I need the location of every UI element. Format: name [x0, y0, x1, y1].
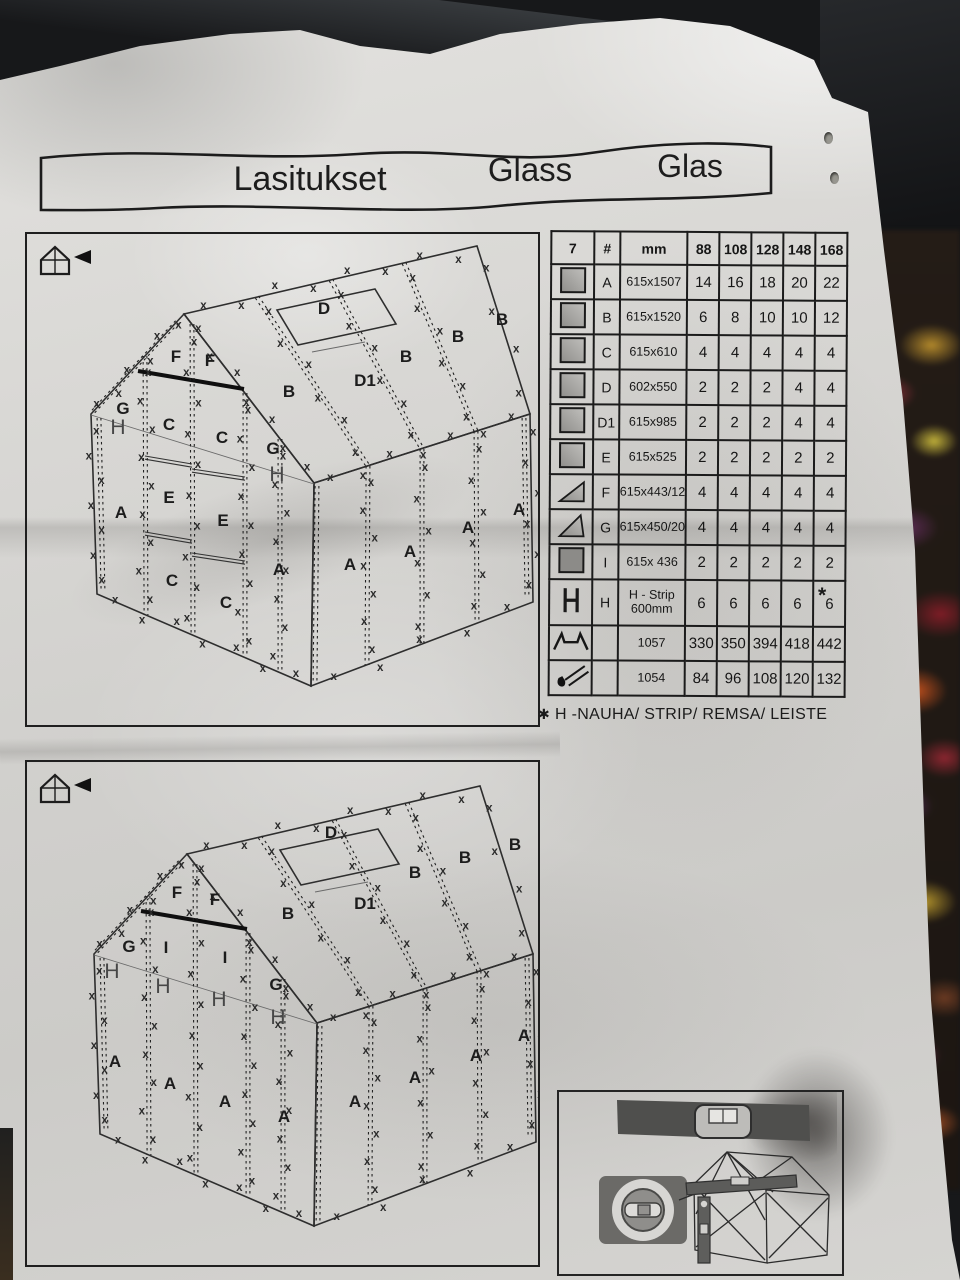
x-mark: x	[516, 883, 523, 895]
table-row: F615x443/1244444	[550, 474, 847, 511]
part-size: 615x1507	[620, 265, 688, 300]
x-mark: x	[529, 1120, 536, 1132]
x-mark: x	[247, 578, 254, 590]
x-mark: x	[341, 414, 348, 426]
x-mark: x	[196, 1122, 203, 1134]
part-quantity: 2	[686, 440, 718, 475]
x-mark: x	[442, 897, 449, 909]
part-quantity: 4	[814, 406, 846, 441]
arrow-left-icon	[74, 778, 91, 792]
x-mark: x	[187, 1153, 194, 1165]
banner-title-german: Glas	[657, 148, 723, 184]
x-mark: x	[526, 580, 533, 592]
x-mark: x	[360, 505, 367, 517]
x-mark: x	[401, 398, 408, 410]
banner-title-english: Glass	[488, 151, 572, 188]
greenhouse-glazing-diagram-plain-side: xxxxxxxxxxxxxxxxxxxxxxxxxxxxxxxxxxxxxxxx…	[27, 762, 538, 1265]
part-quantity: 6	[685, 580, 717, 626]
part-quantity: 96	[717, 661, 749, 696]
table-row: A615x15071416182022	[551, 264, 848, 301]
spirit-level-icon	[617, 1100, 810, 1141]
x-mark: x	[238, 491, 245, 503]
x-mark: x	[417, 843, 424, 855]
x-mark: x	[527, 1058, 534, 1070]
panel-label-A: A	[115, 503, 127, 522]
x-mark: x	[138, 452, 145, 464]
x-mark: x	[198, 999, 205, 1011]
column-header-size: 148	[784, 233, 816, 266]
x-mark: x	[310, 283, 317, 295]
part-quantity: 2	[718, 440, 750, 475]
x-mark: x	[380, 1202, 387, 1214]
panel-label-A: A	[470, 1046, 482, 1065]
part-quantity: 2	[750, 440, 782, 475]
x-mark: x	[409, 272, 416, 284]
view-direction-icon	[35, 770, 97, 808]
part-quantity: 84	[685, 661, 717, 696]
x-mark: x	[377, 375, 384, 387]
x-mark: x	[372, 1184, 379, 1196]
part-letter: H	[592, 579, 618, 625]
x-mark: x	[468, 475, 475, 487]
x-mark: x	[195, 323, 202, 335]
photo-of-instruction-sheet: { "title_banner": { "fi": "Lasitukset", …	[0, 0, 960, 1280]
x-mark: x	[522, 457, 529, 469]
x-mark: x	[101, 1015, 108, 1027]
x-mark: x	[483, 263, 490, 275]
gable-triangle-f-icon	[550, 474, 593, 509]
x-mark: x	[471, 1015, 478, 1027]
x-mark: x	[414, 494, 421, 506]
panel-label-F: F	[171, 347, 181, 366]
footnote: ✱H -NAUHA/ STRIP/ REMSA/ LEISTE	[538, 706, 858, 724]
part-quantity: 4	[718, 510, 750, 545]
x-mark: x	[102, 1114, 109, 1126]
part-quantity: 2	[750, 405, 782, 440]
bubble-level-icon	[599, 1176, 687, 1244]
x-mark: x	[139, 509, 146, 521]
x-mark: x	[422, 462, 429, 474]
x-mark: x	[467, 1168, 474, 1180]
part-quantity: 120	[781, 662, 813, 697]
x-mark: x	[154, 331, 161, 343]
x-mark: x	[198, 938, 205, 950]
x-mark: x	[148, 480, 155, 492]
x-mark: x	[246, 937, 253, 949]
part-quantity: 4	[750, 510, 782, 545]
x-mark: x	[418, 1161, 425, 1173]
x-mark: x	[492, 846, 499, 858]
x-mark: x	[515, 388, 522, 400]
x-mark: x	[175, 319, 182, 331]
x-mark: x	[368, 477, 375, 489]
x-mark: x	[202, 1179, 209, 1191]
part-quantity: 132	[813, 662, 845, 697]
paper-hole	[824, 132, 833, 144]
x-mark: x	[112, 595, 119, 607]
part-quantity: 4	[783, 371, 815, 406]
x-mark: x	[140, 936, 147, 948]
x-mark: x	[263, 1203, 270, 1215]
x-mark: x	[184, 613, 191, 625]
table-row: B615x152068101012	[551, 299, 848, 336]
panel-label-F: F	[205, 351, 215, 370]
x-mark: x	[483, 1046, 490, 1058]
part-letter: D1	[593, 404, 619, 439]
x-mark: x	[346, 321, 353, 333]
x-mark: x	[349, 861, 356, 873]
x-mark: x	[327, 472, 334, 484]
x-mark: x	[363, 1100, 370, 1112]
x-mark: x	[386, 449, 393, 461]
part-quantity: 8	[719, 300, 751, 335]
x-mark: x	[239, 549, 246, 561]
x-mark: x	[428, 1066, 435, 1078]
x-mark: x	[338, 289, 345, 301]
part-quantity: 4	[719, 335, 751, 370]
part-quantity: 2	[719, 370, 751, 405]
paper-sheet: Lasitukset Glass Glas xxxxxxxxxxxxxxxxxx…	[0, 0, 960, 1280]
x-mark: x	[530, 426, 537, 438]
x-mark: x	[99, 574, 106, 586]
part-quantity: 22	[815, 266, 847, 301]
x-mark: x	[151, 1077, 158, 1089]
part-quantity: 2	[686, 405, 718, 440]
x-mark: x	[277, 338, 284, 350]
x-mark: x	[241, 840, 248, 852]
x-mark: x	[98, 525, 105, 537]
panel-label-H: H	[155, 975, 170, 998]
x-mark: x	[537, 1089, 538, 1101]
x-mark: x	[178, 859, 185, 871]
part-letter: G	[593, 509, 619, 544]
panel-label-B: B	[459, 848, 471, 867]
x-mark: x	[424, 589, 431, 601]
part-size: 615x525	[619, 440, 687, 475]
greenhouse-glazing-diagram-door-side: xxxxxxxxxxxxxxxxxxxxxxxxxxxxxxxxxxxxxxxx…	[27, 234, 538, 725]
x-mark: x	[480, 506, 487, 518]
x-mark: x	[287, 1048, 294, 1060]
glass-panel-icon	[550, 439, 593, 474]
table-row: E615x52522222	[550, 439, 847, 476]
x-mark: x	[389, 989, 396, 1001]
x-mark: x	[149, 424, 156, 436]
view-direction-icon	[35, 242, 97, 280]
panel-label-A: A	[349, 1092, 361, 1111]
panel-label-A: A	[409, 1068, 421, 1087]
x-mark: x	[334, 1211, 341, 1223]
x-mark: x	[361, 616, 368, 628]
x-mark: x	[341, 829, 348, 841]
x-mark: x	[373, 1128, 380, 1140]
part-letter: A	[594, 264, 620, 299]
part-quantity: 4	[814, 511, 846, 546]
x-mark: x	[417, 1034, 424, 1046]
x-mark: x	[534, 549, 538, 561]
panel-label-H: H	[269, 463, 284, 486]
panel-label-B: B	[409, 863, 421, 882]
x-mark: x	[307, 1001, 314, 1013]
dark-panel-icon	[549, 544, 592, 579]
x-mark: x	[293, 668, 300, 680]
panel-label-B: B	[496, 310, 508, 329]
x-mark: x	[93, 399, 100, 411]
x-mark: x	[330, 1012, 337, 1024]
x-mark: x	[460, 381, 467, 393]
x-mark: x	[507, 1142, 514, 1154]
panel-label-A: A	[164, 1074, 176, 1093]
panel-label-B: B	[400, 347, 412, 366]
x-mark: x	[508, 411, 515, 423]
x-mark: x	[236, 1182, 243, 1194]
glass-panel-icon	[551, 264, 594, 299]
x-mark: x	[142, 1049, 149, 1061]
panel-label-E: E	[163, 488, 174, 507]
part-quantity: 10	[751, 300, 783, 335]
x-mark: x	[415, 621, 422, 633]
x-mark: x	[504, 602, 511, 614]
x-mark: x	[195, 459, 202, 471]
x-mark: x	[272, 280, 279, 292]
table-row: 1057330350394418442	[549, 625, 846, 662]
x-mark: x	[276, 1076, 283, 1088]
x-mark: x	[273, 536, 280, 548]
part-size: 615x610	[620, 335, 688, 370]
x-mark: x	[249, 462, 256, 474]
column-header-size: 168	[816, 233, 848, 266]
x-mark: x	[101, 1065, 108, 1077]
x-mark: x	[513, 343, 520, 355]
panel-label-E: E	[217, 511, 228, 530]
part-quantity: 2	[782, 546, 814, 581]
x-mark: x	[152, 964, 159, 976]
x-mark: x	[364, 1156, 371, 1168]
x-mark: x	[277, 1133, 284, 1145]
part-quantity: 330	[685, 626, 717, 661]
footnote-text: H -NAUHA/ STRIP/ REMSA/ LEISTE	[555, 706, 827, 723]
panel-label-G: G	[266, 439, 279, 458]
x-mark: x	[535, 488, 538, 500]
panel-label-A: A	[518, 1026, 530, 1045]
x-mark: x	[90, 550, 97, 562]
x-mark: x	[142, 1154, 149, 1166]
x-mark: x	[489, 306, 496, 318]
part-quantity: 2	[782, 441, 814, 476]
panel-label-C: C	[216, 428, 228, 447]
x-mark: x	[88, 500, 95, 512]
x-mark: x	[248, 520, 255, 532]
part-quantity: 4	[750, 475, 782, 510]
glass-panel-icon	[550, 404, 593, 439]
x-mark: x	[240, 973, 247, 985]
x-mark: x	[141, 992, 148, 1004]
x-mark: x	[425, 526, 432, 538]
part-quantity: 2	[750, 545, 782, 580]
x-mark: x	[198, 863, 205, 875]
part-quantity: 4	[814, 476, 846, 511]
x-mark: x	[241, 1031, 248, 1043]
banner-title-finnish: Lasitukset	[233, 160, 387, 198]
x-mark: x	[251, 1060, 258, 1072]
x-mark: x	[238, 1147, 245, 1159]
x-mark: x	[186, 490, 193, 502]
part-quantity: 2	[718, 545, 750, 580]
x-mark: x	[463, 412, 470, 424]
x-mark: x	[194, 521, 201, 533]
x-mark: x	[352, 447, 359, 459]
part-quantity: 2	[814, 546, 846, 581]
x-mark: x	[200, 300, 207, 312]
x-mark: x	[96, 939, 103, 951]
x-mark: x	[243, 397, 250, 409]
x-mark: x	[86, 450, 93, 462]
glass-panel-icon	[550, 369, 593, 404]
panel-label-F: F	[172, 883, 182, 902]
panel-label-H: H	[270, 1006, 285, 1029]
x-mark: x	[347, 805, 354, 817]
x-mark: x	[447, 430, 454, 442]
part-letter	[592, 660, 618, 695]
panel-label-D: D	[325, 823, 337, 842]
x-mark: x	[472, 1078, 479, 1090]
x-mark: x	[425, 1002, 432, 1014]
part-quantity: 20	[783, 266, 815, 301]
x-mark: x	[385, 806, 392, 818]
x-mark: x	[252, 1002, 259, 1014]
part-quantity: 6	[749, 580, 781, 626]
part-letter: I	[592, 544, 618, 579]
x-mark: x	[249, 1176, 256, 1188]
part-quantity: 2	[686, 545, 718, 580]
panel-label-C: C	[163, 415, 175, 434]
part-quantity: 4	[782, 511, 814, 546]
part-quantity: 14	[687, 265, 719, 300]
x-mark: x	[280, 878, 287, 890]
x-mark: x	[524, 518, 531, 530]
x-mark: x	[268, 846, 275, 858]
part-quantity: 16	[719, 265, 751, 300]
column-header-label: #	[594, 231, 620, 264]
part-size: H - Strip600mm	[618, 580, 686, 626]
x-mark: x	[440, 866, 447, 878]
x-mark: x	[374, 882, 381, 894]
x-mark: x	[360, 560, 367, 572]
table-row: HH - Strip600mm66666	[549, 579, 846, 627]
x-mark: x	[199, 639, 206, 651]
column-header-size: 88	[688, 232, 720, 265]
part-quantity: 2	[687, 370, 719, 405]
vertical-level-icon	[698, 1197, 710, 1263]
x-mark: x	[380, 915, 387, 927]
panel-label-A: A	[513, 500, 525, 519]
x-mark: x	[242, 1089, 249, 1101]
x-mark: x	[93, 1090, 100, 1102]
part-quantity: 4	[783, 336, 815, 371]
x-mark: x	[157, 871, 164, 883]
panel-label-A: A	[109, 1052, 121, 1071]
x-mark: x	[93, 425, 100, 437]
x-mark: x	[344, 265, 351, 277]
x-mark: x	[466, 952, 473, 964]
x-mark: x	[250, 1118, 257, 1130]
x-mark: x	[458, 794, 465, 806]
panel-label-A: A	[344, 555, 356, 574]
x-mark: x	[195, 398, 202, 410]
x-mark: x	[284, 508, 291, 520]
x-mark: x	[150, 895, 157, 907]
part-size: 1054	[618, 661, 686, 696]
part-quantity: 2	[751, 370, 783, 405]
x-mark: x	[363, 1010, 370, 1022]
glass-parts-table: 7#mm88108128148168A615x15071416182022B61…	[548, 230, 849, 698]
x-mark: x	[382, 266, 389, 278]
x-mark: x	[115, 1135, 122, 1147]
x-mark: x	[360, 470, 367, 482]
x-mark: x	[275, 820, 282, 832]
x-mark: x	[450, 970, 457, 982]
x-mark: x	[150, 1134, 157, 1146]
background-sliver	[0, 1128, 13, 1280]
x-mark: x	[296, 1208, 303, 1220]
part-quantity: 12	[815, 301, 847, 336]
table-row: 10548496108120132	[549, 660, 846, 697]
x-mark: x	[183, 367, 190, 379]
x-mark: x	[427, 1129, 434, 1141]
x-mark: x	[89, 990, 96, 1002]
column-header-mm: mm	[620, 232, 688, 265]
x-mark: x	[417, 250, 424, 262]
part-quantity: 4	[782, 476, 814, 511]
part-quantity: 418	[781, 627, 813, 662]
panel-label-I: I	[164, 938, 169, 957]
panel-label-H: H	[104, 960, 119, 983]
x-mark: x	[91, 1040, 98, 1052]
part-quantity: 394	[749, 626, 781, 661]
x-mark: x	[480, 569, 487, 581]
x-mark: x	[148, 907, 155, 919]
level-on-frame-icon	[686, 1175, 797, 1195]
x-mark: x	[145, 367, 152, 379]
x-mark: x	[235, 607, 242, 619]
part-quantity: 4	[751, 335, 783, 370]
x-mark: x	[147, 594, 154, 606]
x-mark: x	[127, 905, 134, 917]
x-mark: x	[313, 823, 320, 835]
part-quantity: 6	[781, 581, 813, 627]
diagram-linework: xxxxxxxxxxxxxxxxxxxxxxxxxxxxxxxxxxxxxxxx…	[86, 246, 538, 686]
x-mark: x	[525, 997, 532, 1009]
x-mark: x	[463, 921, 470, 933]
panel-label-C: C	[166, 571, 178, 590]
x-mark: x	[411, 970, 418, 982]
x-mark: x	[370, 588, 377, 600]
glass-panel-icon	[551, 299, 594, 334]
x-mark: x	[285, 1162, 292, 1174]
panel-label-D1: D1	[354, 894, 376, 913]
part-letter: C	[594, 334, 620, 369]
x-mark: x	[371, 1017, 378, 1029]
x-mark: x	[355, 987, 362, 999]
x-mark: x	[182, 551, 189, 563]
x-mark: x	[479, 984, 486, 996]
part-quantity: 2	[814, 441, 846, 476]
panel-label-B: B	[452, 327, 464, 346]
h-profile-icon	[549, 579, 592, 625]
x-mark: x	[148, 537, 155, 549]
x-mark: x	[318, 932, 325, 944]
x-mark: x	[136, 566, 143, 578]
part-quantity: 442	[813, 627, 845, 662]
